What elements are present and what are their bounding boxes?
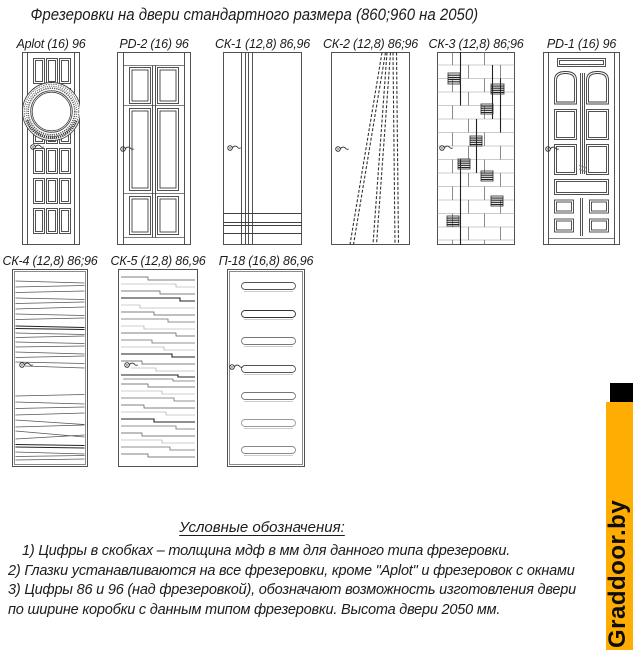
door-label: PD-1 (16) 96 xyxy=(547,37,616,51)
door-label: СК-2 (12,8) 86;96 xyxy=(323,37,418,51)
door-drawing-pd1 xyxy=(543,52,620,245)
door-drawing-ck5 xyxy=(118,269,198,467)
page-title: Фрезеровки на двери стандартного размера… xyxy=(0,5,502,25)
door-figure-ck4: СК-4 (12,8) 86;96 xyxy=(12,269,88,467)
legend-notes: 1) Цифры в скобках – толщина мдф в мм дл… xyxy=(8,542,633,620)
legend-line-1: 1) Цифры в скобках – толщина мдф в мм дл… xyxy=(8,542,633,562)
door-label: PD-2 (16) 96 xyxy=(119,37,188,51)
door-label: СК-5 (12,8) 86,96 xyxy=(111,254,206,268)
door-label: Aplot (16) 96 xyxy=(17,37,86,51)
graddoor-watermark-text: Graddoor.by xyxy=(604,418,633,648)
door-drawing-aplot xyxy=(22,52,80,245)
door-figure-ck3: СК-3 (12,8) 86;96 xyxy=(437,52,515,245)
door-drawing-ck1 xyxy=(223,52,302,245)
door-figure-ck1: СК-1 (12,8) 86,96 xyxy=(223,52,302,245)
door-label: П-18 (16,8) 86,96 xyxy=(219,254,314,268)
legend-line-4: по ширине коробки с данным типом фрезеро… xyxy=(8,601,633,621)
door-drawing-ck4 xyxy=(12,269,88,467)
door-figure-ck5: СК-5 (12,8) 86,96 xyxy=(118,269,198,467)
legend-line-3: 3) Цифры 86 и 96 (над фрезеровкой), обоз… xyxy=(8,581,633,601)
door-catalog-sheet: Фрезеровки на двери стандартного размера… xyxy=(0,0,633,650)
legend-heading: Условные обозначения: xyxy=(0,519,524,536)
door-drawing-ck3 xyxy=(437,52,515,245)
hatched-tiles xyxy=(447,73,504,226)
door-figure-p18: П-18 (16,8) 86,96 xyxy=(227,269,305,467)
ornament-ring xyxy=(23,83,81,141)
door-figure-pd1: PD-1 (16) 96 xyxy=(543,52,620,245)
door-label: СК-3 (12,8) 86;96 xyxy=(429,37,524,51)
door-label: СК-4 (12,8) 86;96 xyxy=(3,254,98,268)
door-figure-aplot: Aplot (16) 96 xyxy=(22,52,80,245)
door-drawing-p18 xyxy=(227,269,305,467)
legend-line-2: 2) Глазки устанавливаются на все фрезеро… xyxy=(8,562,633,582)
door-label: СК-1 (12,8) 86,96 xyxy=(215,37,310,51)
watermark-top-cap xyxy=(610,383,633,403)
door-drawing-pd2 xyxy=(117,52,191,245)
door-drawing-ck2 xyxy=(331,52,410,245)
door-figure-pd2: PD-2 (16) 96 xyxy=(117,52,191,245)
door-figure-ck2: СК-2 (12,8) 86;96 xyxy=(331,52,410,245)
